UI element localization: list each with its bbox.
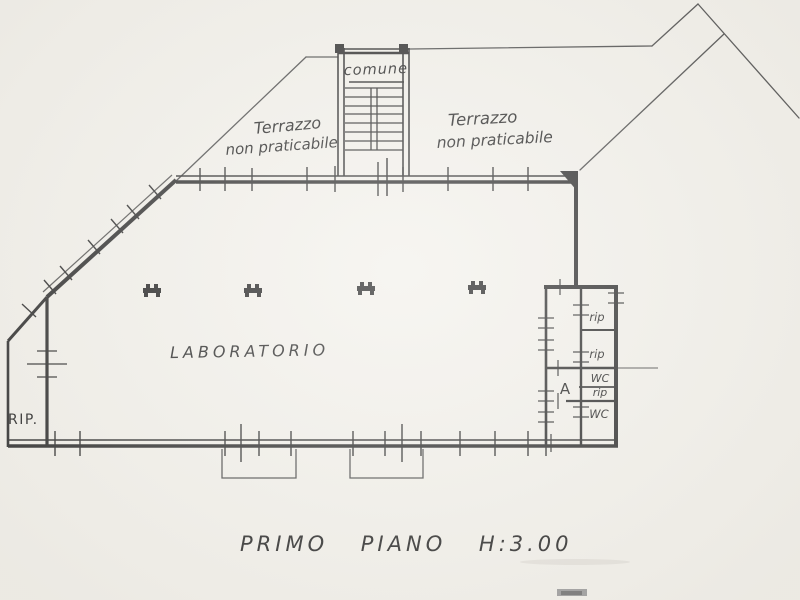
- top-wall-window-band: [176, 162, 576, 196]
- structural-column-marker: [244, 284, 262, 297]
- storage-label: RIP.: [8, 412, 39, 428]
- exterior-landings: [222, 449, 423, 478]
- structural-column-marker: [468, 281, 486, 294]
- structural-column-marker: [357, 282, 375, 295]
- scan-smudges: [520, 559, 630, 596]
- annex-room-label-rip-1: rip: [589, 310, 604, 324]
- terrace-right-label-line2: non praticabile: [436, 128, 553, 152]
- bottom-wall-window-band: [8, 424, 618, 462]
- plan-caption: PRIMO PIANO H:3.00: [240, 532, 573, 556]
- diagonal-wall: [8, 175, 176, 341]
- annex-room-label-wc-2: WC: [589, 407, 608, 421]
- annex-room-label-rip-3: rip: [593, 386, 608, 399]
- annex-room-label-wc-1: WC: [591, 372, 610, 385]
- window-tick-marker: [200, 162, 528, 196]
- window-tick-marker: [55, 424, 546, 462]
- annex-corridor-label: A: [560, 380, 571, 398]
- annex-block: [538, 279, 658, 452]
- window-tick-marker: [22, 185, 161, 317]
- terrace-left-label-line2: non praticabile: [225, 133, 338, 159]
- laboratory-label: LABORATORIO: [170, 340, 329, 362]
- stair-treads: [345, 88, 403, 150]
- structural-column-markers: [143, 281, 486, 297]
- terrace-right-label-line1: Terrazzo: [448, 107, 518, 130]
- floor-plan-drawing: comune Terrazzo non praticabile Terrazzo…: [0, 0, 800, 600]
- stairwell-label: comune: [343, 61, 408, 79]
- floor-plan-sheet: comune Terrazzo non praticabile Terrazzo…: [0, 0, 800, 600]
- structural-column-marker: [143, 284, 161, 297]
- annex-room-label-rip-2: rip: [589, 347, 604, 361]
